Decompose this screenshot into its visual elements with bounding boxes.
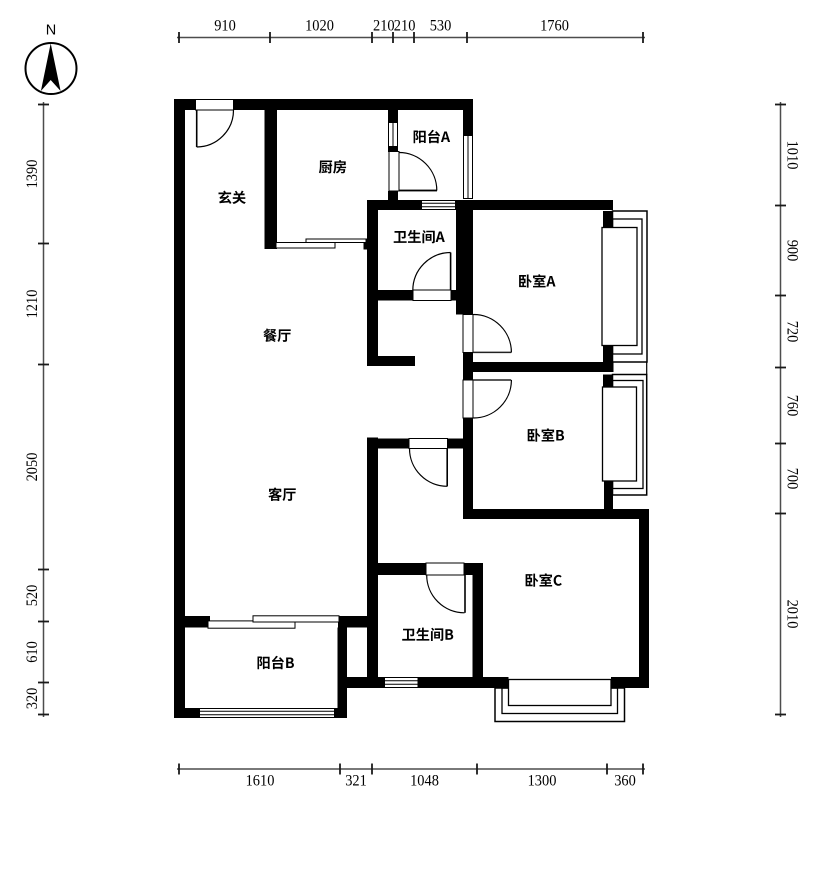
svg-text:1010: 1010 [783,141,800,170]
svg-text:760: 760 [783,395,800,417]
svg-text:1300: 1300 [528,772,557,789]
svg-text:2010: 2010 [783,600,800,629]
svg-text:1390: 1390 [24,160,41,189]
svg-text:700: 700 [783,468,800,490]
svg-text:530: 530 [430,18,452,35]
svg-text:320: 320 [24,688,41,710]
svg-text:1760: 1760 [540,18,569,35]
svg-text:210: 210 [394,18,416,35]
svg-text:321: 321 [345,772,367,789]
svg-text:1048: 1048 [410,772,439,789]
svg-text:360: 360 [614,772,636,789]
svg-text:520: 520 [24,585,41,607]
svg-text:720: 720 [783,321,800,343]
svg-text:910: 910 [214,18,236,35]
svg-text:N: N [46,23,56,39]
svg-text:1210: 1210 [24,290,41,319]
svg-text:210: 210 [373,18,395,35]
svg-text:1020: 1020 [305,18,334,35]
svg-text:610: 610 [24,641,41,663]
svg-text:2050: 2050 [24,453,41,482]
svg-text:900: 900 [783,240,800,262]
svg-text:1610: 1610 [246,772,275,789]
